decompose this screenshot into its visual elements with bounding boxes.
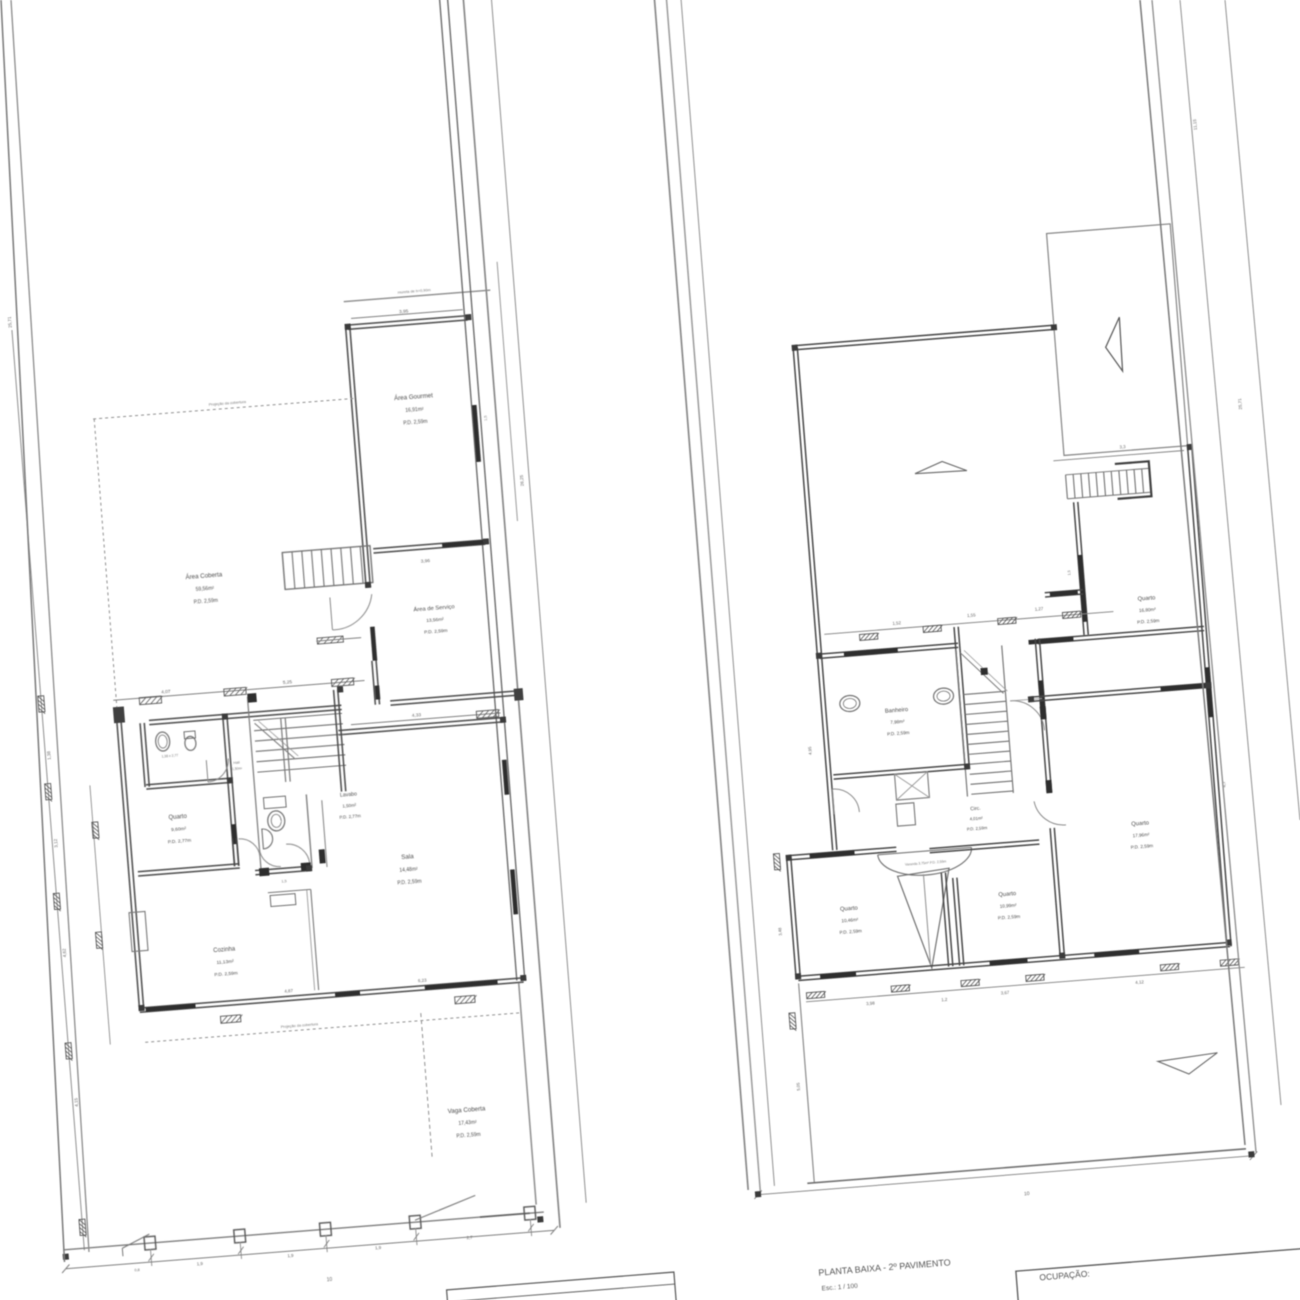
svg-text:4,7: 4,7	[1221, 781, 1227, 788]
svg-text:11,15: 11,15	[1192, 118, 1198, 130]
svg-text:1,38: 1,38	[46, 750, 52, 760]
svg-text:1,55: 1,55	[967, 612, 976, 618]
svg-text:3,98: 3,98	[866, 1000, 875, 1006]
svg-text:4,01m²: 4,01m²	[970, 815, 984, 821]
svg-text:3,3: 3,3	[1119, 444, 1126, 450]
svg-text:4,15: 4,15	[73, 1097, 79, 1107]
svg-text:10: 10	[326, 1277, 332, 1283]
svg-text:Circ.: Circ.	[970, 806, 981, 813]
svg-text:25,71: 25,71	[7, 316, 13, 328]
svg-text:4,07: 4,07	[161, 689, 171, 696]
svg-text:1,2: 1,2	[941, 997, 948, 1003]
svg-text:1,52: 1,52	[892, 620, 901, 626]
svg-text:3,12: 3,12	[53, 838, 59, 848]
svg-text:4,95: 4,95	[807, 746, 813, 755]
svg-text:3,67: 3,67	[1001, 990, 1010, 996]
svg-text:1,9: 1,9	[287, 1253, 294, 1259]
svg-text:1,5: 1,5	[281, 879, 287, 883]
svg-text:1,9: 1,9	[375, 1245, 382, 1251]
svg-text:Hall: Hall	[233, 761, 240, 765]
svg-text:1,9: 1,9	[197, 1261, 204, 1267]
svg-text:5,05: 5,05	[795, 1082, 801, 1091]
svg-text:1,5: 1,5	[484, 415, 488, 421]
svg-text:0,8: 0,8	[134, 1268, 140, 1272]
svg-text:10: 10	[1024, 1191, 1030, 1197]
svg-text:1,5: 1,5	[1067, 570, 1071, 576]
svg-text:3,96: 3,96	[420, 558, 430, 565]
svg-text:26,25: 26,25	[519, 474, 525, 486]
svg-text:4,87: 4,87	[284, 988, 293, 994]
svg-text:1,50m²: 1,50m²	[232, 766, 242, 771]
svg-text:4,62: 4,62	[62, 948, 68, 958]
svg-text:3,95: 3,95	[399, 308, 409, 315]
svg-text:4,12: 4,12	[1135, 979, 1144, 985]
svg-text:1,27: 1,27	[1035, 606, 1044, 612]
svg-text:4,33: 4,33	[412, 712, 422, 719]
svg-text:5,25: 5,25	[283, 679, 293, 686]
svg-text:3,48: 3,48	[777, 927, 783, 936]
svg-text:25,71: 25,71	[1237, 398, 1243, 410]
svg-text:9,60m²: 9,60m²	[171, 826, 187, 833]
svg-text:Sala: Sala	[401, 853, 414, 861]
svg-text:6,23: 6,23	[418, 978, 427, 984]
